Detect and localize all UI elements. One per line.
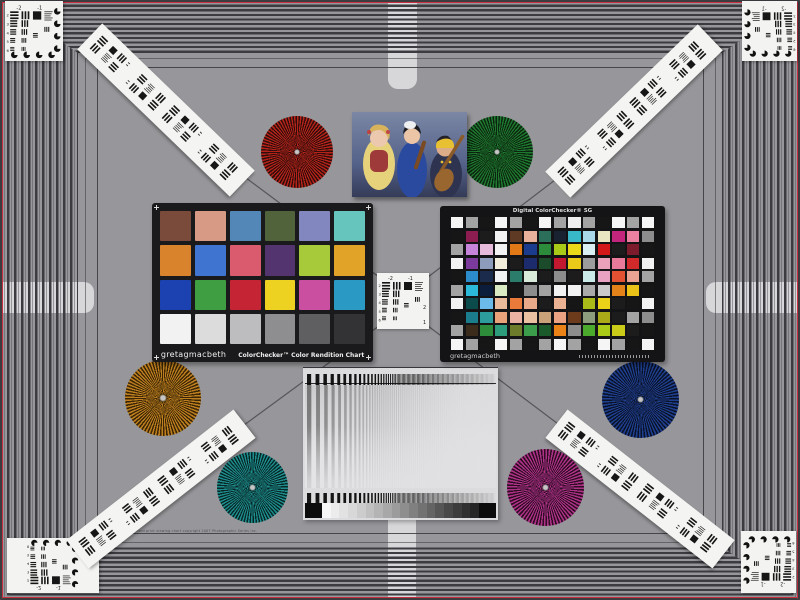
- sg-patch: [627, 325, 639, 336]
- sg-patch: [510, 258, 522, 269]
- sg-patch: [466, 244, 478, 255]
- svg-text:-1: -1: [56, 584, 61, 590]
- sg-patch: [583, 298, 595, 309]
- camera-test-chart-scene: -2-1 23456 -2-1 23456 -2-1 23456 -2-1 23…: [0, 0, 800, 600]
- sweep-bar-strip-top: [305, 371, 496, 384]
- svg-text:-2: -2: [388, 276, 393, 282]
- sg-brand: gretagmacbeth: [450, 352, 500, 360]
- sg-patch: [642, 244, 654, 255]
- sg-patch: [466, 339, 478, 350]
- sg-patch: [583, 231, 595, 242]
- cc-patch: [265, 245, 296, 275]
- sg-patch: [554, 339, 566, 350]
- sg-patch: [612, 339, 624, 350]
- sg-patch: [642, 339, 654, 350]
- gray-step: [435, 503, 444, 518]
- sg-patch: [539, 231, 551, 242]
- sg-patch: [466, 312, 478, 323]
- svg-text:-2: -2: [780, 581, 785, 587]
- sg-patch: [612, 271, 624, 282]
- sg-patch: [568, 258, 580, 269]
- sg-patch: [524, 312, 536, 323]
- sg-patch: [598, 258, 610, 269]
- svg-text:4: 4: [379, 301, 382, 305]
- svg-text:4: 4: [7, 31, 10, 35]
- sg-patch: [583, 312, 595, 323]
- sg-patch: [480, 231, 492, 242]
- svg-text:2: 2: [27, 578, 29, 582]
- orange-siemens-star: [125, 360, 201, 436]
- svg-text:3: 3: [379, 293, 381, 297]
- gray-step: [374, 503, 383, 518]
- sg-patch: [480, 312, 492, 323]
- sg-patch: [495, 325, 507, 336]
- gray-step: [470, 503, 479, 518]
- svg-text:2: 2: [379, 284, 381, 288]
- cc-patch: [160, 314, 191, 344]
- sg-patch: [524, 339, 536, 350]
- sg-patch: [495, 271, 507, 282]
- sg-scale-ticks: [579, 355, 651, 358]
- svg-text:5: 5: [793, 40, 795, 44]
- registration-plus-icon: [154, 205, 159, 210]
- sg-title: Digital ColorChecker® SG: [440, 208, 665, 214]
- sg-patch: [583, 271, 595, 282]
- sg-patch: [451, 285, 463, 296]
- cc-patch: [265, 280, 296, 310]
- sg-patch: [568, 217, 580, 228]
- cc-patch: [230, 211, 261, 241]
- three-musicians-test-photo: [352, 112, 467, 197]
- sg-patch: [583, 217, 595, 228]
- sg-patch: [642, 231, 654, 242]
- cc-patch: [230, 314, 261, 344]
- sg-patch: [524, 231, 536, 242]
- colorchecker-patch-grid: [160, 211, 365, 344]
- sg-patch: [524, 271, 536, 282]
- colorchecker-label: gretagmacbeth ColorChecker™ Color Rendit…: [152, 350, 373, 359]
- sg-patch-grid: [451, 217, 654, 350]
- cc-patch: [195, 211, 226, 241]
- sg-patch: [598, 312, 610, 323]
- svg-text:5: 5: [379, 310, 381, 314]
- sg-patch: [598, 339, 610, 350]
- svg-text:6: 6: [27, 544, 30, 548]
- sg-patch: [583, 258, 595, 269]
- sg-patch: [451, 217, 463, 228]
- sweep-fade-overlay: [305, 385, 496, 488]
- sg-patch: [466, 258, 478, 269]
- gray-step: [357, 503, 366, 518]
- svg-text:-1: -1: [37, 5, 42, 11]
- sg-patch: [598, 285, 610, 296]
- sg-patch: [480, 285, 492, 296]
- sg-patch: [495, 298, 507, 309]
- black-end-patch: [305, 503, 322, 518]
- sg-patch: [568, 298, 580, 309]
- usaf-target: -2-1 23456: [742, 1, 797, 61]
- sg-patch: [627, 271, 639, 282]
- sg-patch: [510, 285, 522, 296]
- sg-patch: [451, 312, 463, 323]
- green-siemens-star: [461, 116, 533, 188]
- teal-siemens-star: [217, 452, 288, 523]
- sg-patch: [627, 312, 639, 323]
- sg-patch: [480, 339, 492, 350]
- cc-patch: [160, 280, 191, 310]
- sg-patch: [495, 285, 507, 296]
- usaf-target: -2-1 23456 21: [377, 273, 429, 329]
- sg-patch: [495, 217, 507, 228]
- sg-patch: [612, 325, 624, 336]
- registration-plus-icon: [154, 355, 159, 360]
- svg-text:2: 2: [423, 305, 426, 311]
- svg-text:4: 4: [793, 31, 796, 35]
- sg-patch: [524, 325, 536, 336]
- sg-patch: [510, 231, 522, 242]
- sg-patch: [612, 312, 624, 323]
- sg-patch: [598, 271, 610, 282]
- sg-patch: [598, 217, 610, 228]
- corner-resolution-card-bottom-right: -2-1 23456: [741, 531, 796, 593]
- sg-patch: [480, 217, 492, 228]
- cc-patch: [195, 314, 226, 344]
- colorchecker-title: ColorChecker™ Color Rendition Chart: [238, 352, 364, 359]
- cc-patch: [299, 245, 330, 275]
- sg-patch: [554, 325, 566, 336]
- cc-patch: [195, 280, 226, 310]
- gray-step: [331, 503, 340, 518]
- sg-patch: [642, 325, 654, 336]
- sg-patch: [554, 244, 566, 255]
- sg-patch: [642, 258, 654, 269]
- svg-text:6: 6: [379, 318, 382, 322]
- gray-step: [427, 503, 436, 518]
- svg-text:3: 3: [792, 566, 794, 570]
- svg-text:5: 5: [792, 549, 794, 553]
- sg-patch: [598, 298, 610, 309]
- sg-patch: [583, 244, 595, 255]
- gray-step: [322, 503, 331, 518]
- sg-patch: [583, 325, 595, 336]
- sg-patch: [524, 258, 536, 269]
- sg-patch: [627, 244, 639, 255]
- sg-patch: [539, 285, 551, 296]
- sg-patch: [480, 325, 492, 336]
- usaf-target: -2-1 23456: [5, 1, 63, 61]
- svg-text:-1: -1: [761, 581, 766, 587]
- registration-plus-icon: [366, 205, 371, 210]
- sg-patch: [539, 325, 551, 336]
- sg-patch: [568, 244, 580, 255]
- svg-text:-2: -2: [36, 584, 41, 590]
- svg-text:3: 3: [27, 570, 29, 574]
- svg-text:2: 2: [7, 14, 9, 18]
- sg-patch: [451, 339, 463, 350]
- sg-patch: [480, 271, 492, 282]
- cc-patch: [299, 211, 330, 241]
- svg-text:2: 2: [793, 14, 795, 18]
- svg-text:1: 1: [423, 320, 426, 326]
- sg-patch: [466, 231, 478, 242]
- sg-patch: [495, 312, 507, 323]
- svg-text:4: 4: [27, 561, 30, 565]
- sg-patch: [495, 258, 507, 269]
- sg-patch: [627, 339, 639, 350]
- gray-step: [418, 503, 427, 518]
- cc-patch: [230, 245, 261, 275]
- sg-patch: [466, 271, 478, 282]
- cc-patch: [195, 245, 226, 275]
- sg-patch: [495, 231, 507, 242]
- colorchecker-classic-chart: gretagmacbeth ColorChecker™ Color Rendit…: [152, 203, 373, 362]
- svg-text:6: 6: [793, 48, 796, 52]
- sg-patch: [598, 244, 610, 255]
- cc-patch: [299, 280, 330, 310]
- sg-patch: [583, 285, 595, 296]
- sg-patch: [480, 244, 492, 255]
- colorchecker-sg-chart: Digital ColorChecker® SG gretagmacbeth: [440, 206, 665, 362]
- sg-patch: [642, 285, 654, 296]
- sg-patch: [510, 312, 522, 323]
- sg-patch: [642, 298, 654, 309]
- sg-patch: [510, 339, 522, 350]
- cc-patch: [334, 211, 365, 241]
- sg-patch: [451, 271, 463, 282]
- gray-steps: [322, 503, 479, 518]
- sg-patch: [554, 258, 566, 269]
- cc-patch: [160, 211, 191, 241]
- sg-patch: [480, 258, 492, 269]
- red-siemens-star: [261, 116, 333, 188]
- sg-patch: [524, 217, 536, 228]
- sg-patch: [568, 271, 580, 282]
- sg-patch: [554, 271, 566, 282]
- sg-patch: [524, 285, 536, 296]
- sg-patch: [568, 312, 580, 323]
- sg-patch: [642, 312, 654, 323]
- sg-patch: [612, 231, 624, 242]
- gray-step: [383, 503, 392, 518]
- cc-patch: [265, 211, 296, 241]
- svg-text:3: 3: [793, 23, 795, 27]
- sg-patch: [451, 258, 463, 269]
- cc-patch: [160, 245, 191, 275]
- sg-patch: [568, 339, 580, 350]
- sg-patch: [612, 285, 624, 296]
- sg-patch: [466, 285, 478, 296]
- sg-patch: [539, 298, 551, 309]
- sg-patch: [539, 258, 551, 269]
- sg-patch: [480, 298, 492, 309]
- sg-patch: [495, 339, 507, 350]
- magenta-siemens-star: [507, 449, 584, 526]
- sg-patch: [539, 339, 551, 350]
- sg-patch: [466, 217, 478, 228]
- sg-patch: [554, 298, 566, 309]
- gray-step: [444, 503, 453, 518]
- svg-text:4: 4: [792, 558, 795, 562]
- center-resolution-card: -2-1 23456 21: [377, 273, 429, 329]
- sg-patch: [466, 325, 478, 336]
- sg-patch: [539, 244, 551, 255]
- sg-patch: [627, 258, 639, 269]
- sg-patch: [642, 217, 654, 228]
- sg-patch: [539, 217, 551, 228]
- cc-patch: [334, 245, 365, 275]
- svg-text:3: 3: [7, 22, 10, 26]
- svg-text:6: 6: [7, 49, 10, 53]
- gray-step-wedge: [305, 503, 496, 518]
- sg-patch: [642, 271, 654, 282]
- gray-step: [339, 503, 348, 518]
- gray-step: [392, 503, 401, 518]
- sg-patch: [451, 298, 463, 309]
- sg-patch: [612, 298, 624, 309]
- cc-patch: [230, 280, 261, 310]
- colorchecker-brand: gretagmacbeth: [161, 350, 226, 359]
- sg-patch: [539, 312, 551, 323]
- svg-text:5: 5: [7, 40, 10, 44]
- sg-patch: [598, 325, 610, 336]
- sg-patch: [583, 339, 595, 350]
- sg-patch: [554, 312, 566, 323]
- blue-siemens-star: [602, 361, 679, 438]
- sg-patch: [451, 231, 463, 242]
- sg-patch: [510, 325, 522, 336]
- gray-step: [366, 503, 375, 518]
- sg-patch: [510, 298, 522, 309]
- svg-text:-2: -2: [781, 6, 786, 12]
- sg-patch: [451, 325, 463, 336]
- sg-patch: [466, 298, 478, 309]
- registration-plus-icon: [366, 355, 371, 360]
- gray-step: [453, 503, 462, 518]
- gray-step: [409, 503, 418, 518]
- gray-step: [462, 503, 471, 518]
- sg-patch: [627, 231, 639, 242]
- sg-patch: [568, 231, 580, 242]
- svg-text:2: 2: [792, 575, 794, 579]
- sg-patch: [612, 217, 624, 228]
- sg-patch: [554, 231, 566, 242]
- footer-fine-print: Standard print viewing chart copyright 2…: [128, 529, 257, 533]
- cc-patch: [299, 314, 330, 344]
- sg-patch: [627, 298, 639, 309]
- usaf-target: -2-1 23456: [741, 531, 796, 593]
- sg-patch: [524, 298, 536, 309]
- sg-patch: [451, 244, 463, 255]
- sg-patch: [524, 244, 536, 255]
- svg-text:5: 5: [27, 553, 29, 557]
- sg-patch: [612, 244, 624, 255]
- sg-patch: [510, 217, 522, 228]
- sg-patch: [539, 271, 551, 282]
- svg-text:-1: -1: [762, 6, 767, 12]
- cc-patch: [265, 314, 296, 344]
- sg-patch: [627, 285, 639, 296]
- corner-resolution-card-top-left: -2-1 23456: [5, 1, 63, 61]
- sg-patch: [568, 325, 580, 336]
- cc-patch: [334, 314, 365, 344]
- sg-patch: [612, 258, 624, 269]
- sg-patch: [627, 217, 639, 228]
- sg-patch: [554, 285, 566, 296]
- sg-patch: [568, 285, 580, 296]
- gray-step: [400, 503, 409, 518]
- svg-text:6: 6: [792, 541, 795, 545]
- corner-resolution-card-top-right: -2-1 23456: [742, 1, 797, 61]
- cc-patch: [334, 280, 365, 310]
- sg-patch: [495, 244, 507, 255]
- gray-step: [348, 503, 357, 518]
- svg-text:-1: -1: [408, 276, 413, 282]
- frequency-sweep-panel: [303, 367, 498, 520]
- sg-patch: [554, 217, 566, 228]
- sg-patch: [510, 271, 522, 282]
- black-end-patch: [479, 503, 496, 518]
- sg-patch: [510, 244, 522, 255]
- sg-patch: [598, 231, 610, 242]
- svg-text:-2: -2: [16, 5, 21, 11]
